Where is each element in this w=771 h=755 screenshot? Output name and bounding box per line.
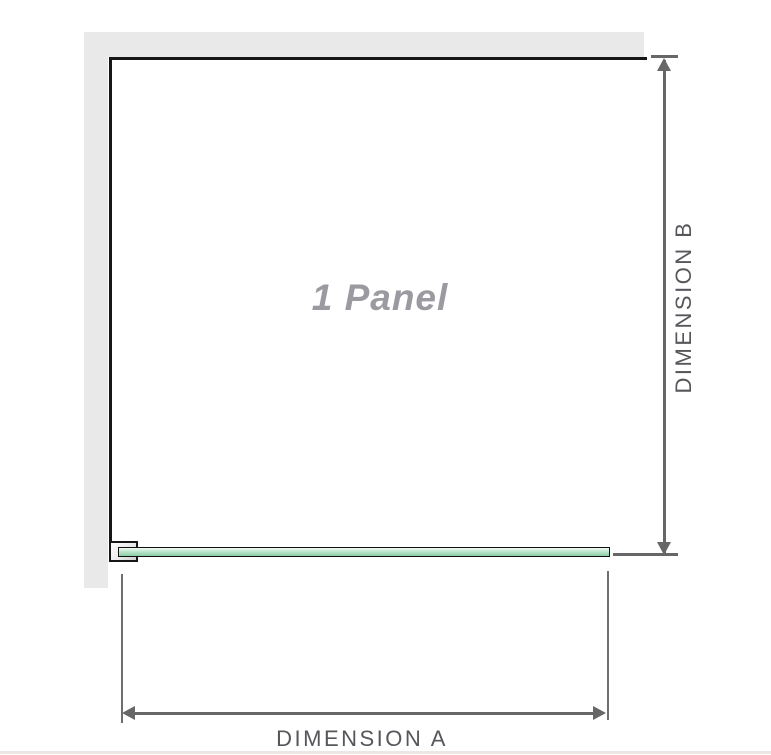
dimension-a-label: DIMENSION A [276, 726, 448, 752]
extension-line-right [607, 571, 610, 720]
dimension-a-line [126, 712, 596, 715]
dimension-b-line [663, 60, 666, 553]
extension-line-left [121, 574, 124, 723]
glass-panel-bar [118, 547, 610, 557]
wall-left-band [84, 32, 108, 588]
arrow-up-icon [657, 58, 671, 71]
arrow-down-icon [657, 542, 671, 555]
arrow-left-icon [122, 706, 135, 720]
dimension-b-label: DIMENSION B [671, 221, 697, 394]
wall-top-band [84, 32, 644, 57]
shower-panel-dimension-diagram: 1 Panel DIMENSION B DIMENSION A [0, 0, 771, 755]
panel-top-edge [109, 57, 647, 60]
panel-count-label: 1 Panel [312, 277, 449, 319]
panel-left-edge [109, 57, 112, 543]
arrow-right-icon [593, 706, 606, 720]
bottom-divider [0, 751, 771, 754]
